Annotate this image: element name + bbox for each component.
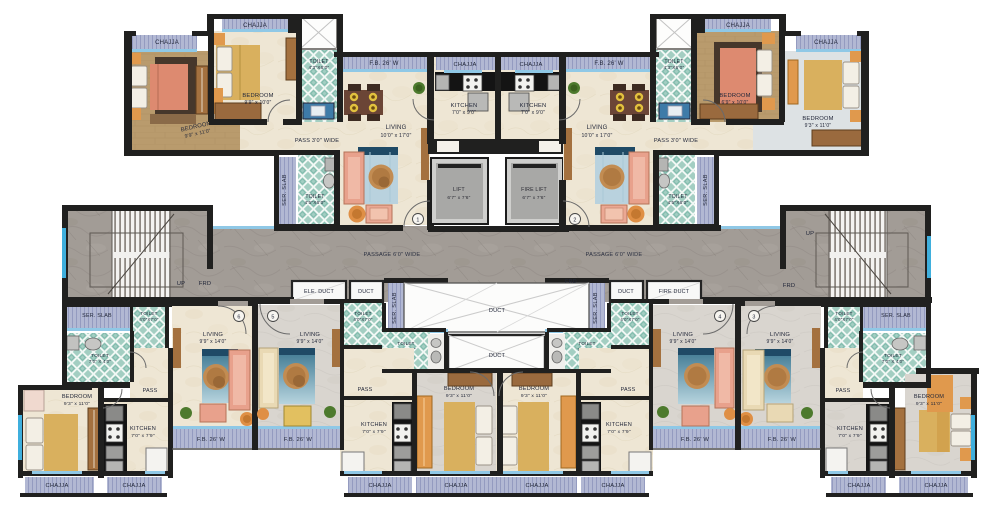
svg-text:4'0"X7'0": 4'0"X7'0" [620, 317, 640, 322]
svg-text:BEDROOM: BEDROOM [914, 394, 944, 400]
svg-text:7'0" x 7'9": 7'0" x 7'9" [607, 429, 631, 435]
svg-text:9'3" x 11'0": 9'3" x 11'0" [805, 123, 832, 129]
svg-text:CHAJJA: CHAJJA [924, 483, 947, 489]
svg-text:CHAJJA: CHAJJA [243, 23, 267, 29]
svg-text:BEDROOM: BEDROOM [242, 93, 273, 99]
svg-text:4'0"X7'0": 4'0"X7'0" [834, 317, 854, 322]
svg-text:BEDROOM: BEDROOM [62, 394, 92, 400]
svg-text:FIRE DUCT: FIRE DUCT [659, 289, 690, 295]
svg-text:BEDROOM: BEDROOM [519, 386, 549, 392]
svg-text:4'0"X7'0": 4'0"X7'0" [353, 317, 373, 322]
svg-text:4'5"X6'0": 4'5"X6'0" [305, 200, 326, 206]
svg-text:F.B. 26' W: F.B. 26' W [284, 437, 313, 443]
svg-text:CHAJJA: CHAJJA [601, 483, 624, 489]
svg-text:4'5"X6'0": 4'5"X6'0" [668, 200, 689, 206]
svg-text:TOILET: TOILET [140, 311, 157, 316]
svg-text:CHAJJA: CHAJJA [726, 23, 750, 29]
svg-text:9'9" x 14'0": 9'9" x 14'0" [199, 339, 226, 345]
svg-text:LIVING: LIVING [300, 332, 320, 338]
svg-text:6: 6 [237, 315, 240, 321]
svg-text:PASSAGE 6'0" WIDE: PASSAGE 6'0" WIDE [586, 252, 643, 258]
svg-text:CHAJJA: CHAJJA [368, 483, 391, 489]
svg-text:TOILET: TOILET [835, 311, 852, 316]
svg-text:SER. SLAB: SER. SLAB [593, 292, 599, 324]
svg-text:CHAJJA: CHAJJA [453, 62, 476, 68]
svg-text:3: 3 [752, 315, 755, 321]
svg-text:FIRE LIFT: FIRE LIFT [521, 187, 547, 193]
svg-text:PASSAGE 6'0" WIDE: PASSAGE 6'0" WIDE [364, 252, 421, 258]
svg-text:7'0" X 4'0": 7'0" X 4'0" [882, 359, 904, 364]
svg-text:TOILET: TOILET [309, 59, 329, 65]
svg-text:FRD: FRD [199, 281, 212, 287]
svg-text:PASS 3'0" WIDE: PASS 3'0" WIDE [295, 138, 339, 144]
svg-text:F.B. 26' W: F.B. 26' W [594, 61, 623, 67]
svg-text:PASS: PASS [143, 388, 158, 394]
svg-text:DUCT: DUCT [489, 308, 506, 314]
svg-text:TOILET: TOILET [305, 194, 325, 200]
svg-text:9'3" x 11'0": 9'3" x 11'0" [521, 393, 547, 399]
svg-text:1: 1 [416, 218, 419, 224]
svg-text:CHAJJA: CHAJJA [45, 483, 68, 489]
svg-text:PASS: PASS [358, 387, 373, 393]
svg-text:SER. SLAB: SER. SLAB [703, 174, 709, 206]
svg-text:TOILET: TOILET [664, 59, 684, 65]
svg-text:9'3" x 11'0": 9'3" x 11'0" [64, 401, 90, 407]
svg-text:CHAJJA: CHAJJA [155, 40, 179, 46]
svg-text:9'9" x 10'0": 9'9" x 10'0" [244, 100, 271, 106]
svg-text:6'7" x 7'6": 6'7" x 7'6" [447, 195, 470, 201]
svg-text:KITCHEN: KITCHEN [361, 422, 387, 428]
svg-text:9'9" x 14'0": 9'9" x 14'0" [766, 339, 793, 345]
svg-text:2: 2 [573, 218, 576, 224]
svg-text:LIFT: LIFT [453, 187, 465, 193]
svg-text:FRD: FRD [783, 283, 796, 289]
svg-text:F.B. 26' W: F.B. 26' W [681, 437, 710, 443]
svg-text:CHAJJA: CHAJJA [519, 62, 542, 68]
svg-text:7'0" x 7'9": 7'0" x 7'9" [131, 433, 155, 439]
svg-text:9'9" x 14'0": 9'9" x 14'0" [296, 339, 323, 345]
svg-text:10'0" x 17'0": 10'0" x 17'0" [380, 133, 411, 139]
svg-text:UP: UP [806, 231, 814, 237]
svg-text:CHAJJA: CHAJJA [444, 483, 467, 489]
svg-text:TOILET: TOILET [621, 311, 638, 316]
svg-text:10'0" x 17'0": 10'0" x 17'0" [581, 133, 612, 139]
svg-text:DUCT: DUCT [618, 289, 634, 295]
svg-text:BEDROOM: BEDROOM [719, 93, 750, 99]
svg-text:9'9" x 14'0": 9'9" x 14'0" [669, 339, 696, 345]
svg-text:4: 4 [718, 315, 721, 321]
svg-text:TOILET: TOILET [578, 341, 595, 346]
svg-text:SER. SLAB: SER. SLAB [392, 292, 398, 324]
svg-text:CHAJJA: CHAJJA [122, 483, 145, 489]
svg-text:4'3"X6'0": 4'3"X6'0" [309, 65, 330, 71]
svg-text:FRD: FRD [565, 279, 577, 285]
svg-text:PASS: PASS [836, 388, 851, 394]
svg-text:F.B. 26' W: F.B. 26' W [768, 437, 797, 443]
svg-text:7'0" X 4'0": 7'0" X 4'0" [89, 359, 111, 364]
svg-text:5: 5 [271, 315, 274, 321]
svg-text:KITCHEN: KITCHEN [520, 103, 547, 109]
svg-text:UP: UP [177, 281, 185, 287]
svg-text:CHAJJA: CHAJJA [847, 483, 870, 489]
svg-text:LIVING: LIVING [770, 332, 790, 338]
svg-text:6'9" x 10'0": 6'9" x 10'0" [721, 100, 748, 106]
svg-text:BEDROOM: BEDROOM [444, 386, 474, 392]
svg-text:TOILET: TOILET [354, 311, 371, 316]
svg-text:LIVING: LIVING [203, 332, 223, 338]
svg-text:KITCHEN: KITCHEN [837, 426, 863, 432]
svg-text:TOILET: TOILET [668, 194, 688, 200]
svg-text:7'0" x 9'0": 7'0" x 9'0" [521, 110, 545, 116]
svg-text:PASS 3'0" WIDE: PASS 3'0" WIDE [654, 138, 698, 144]
svg-text:4'0"X7'0": 4'0"X7'0" [139, 317, 159, 322]
svg-text:7'0" x 7'9": 7'0" x 7'9" [362, 429, 386, 435]
svg-text:7'0" x 9'0": 7'0" x 9'0" [452, 110, 476, 116]
svg-text:SER. SLAB: SER. SLAB [82, 313, 112, 319]
svg-text:SER. SLAB: SER. SLAB [881, 313, 911, 319]
svg-text:PASS: PASS [621, 387, 636, 393]
svg-text:TOILET: TOILET [397, 341, 414, 346]
svg-text:6'7" x 7'6": 6'7" x 7'6" [522, 195, 545, 201]
svg-text:9'3" x 11'0": 9'3" x 11'0" [446, 393, 472, 399]
svg-text:F.B. 26' W: F.B. 26' W [369, 61, 398, 67]
svg-text:DUCT: DUCT [489, 353, 506, 359]
svg-text:LIVING: LIVING [673, 332, 693, 338]
svg-text:CHAJJA: CHAJJA [814, 40, 838, 46]
svg-text:BEDROOM: BEDROOM [802, 116, 833, 122]
svg-text:CHAJJA: CHAJJA [525, 483, 548, 489]
svg-text:7'0" x 7'9": 7'0" x 7'9" [838, 433, 862, 439]
svg-text:DUCT: DUCT [358, 289, 374, 295]
svg-text:KITCHEN: KITCHEN [606, 422, 632, 428]
svg-text:4'3"X6'0": 4'3"X6'0" [664, 65, 685, 71]
svg-text:ELE. DUCT: ELE. DUCT [304, 289, 334, 295]
svg-text:KITCHEN: KITCHEN [130, 426, 156, 432]
svg-text:9'3" x 11'0": 9'3" x 11'0" [916, 401, 942, 407]
svg-text:LIVING: LIVING [386, 125, 407, 131]
svg-text:LIVING: LIVING [587, 125, 608, 131]
svg-text:SER. SLAB: SER. SLAB [282, 174, 288, 206]
svg-text:F.B. 26' W: F.B. 26' W [197, 437, 226, 443]
svg-text:KITCHEN: KITCHEN [451, 103, 478, 109]
